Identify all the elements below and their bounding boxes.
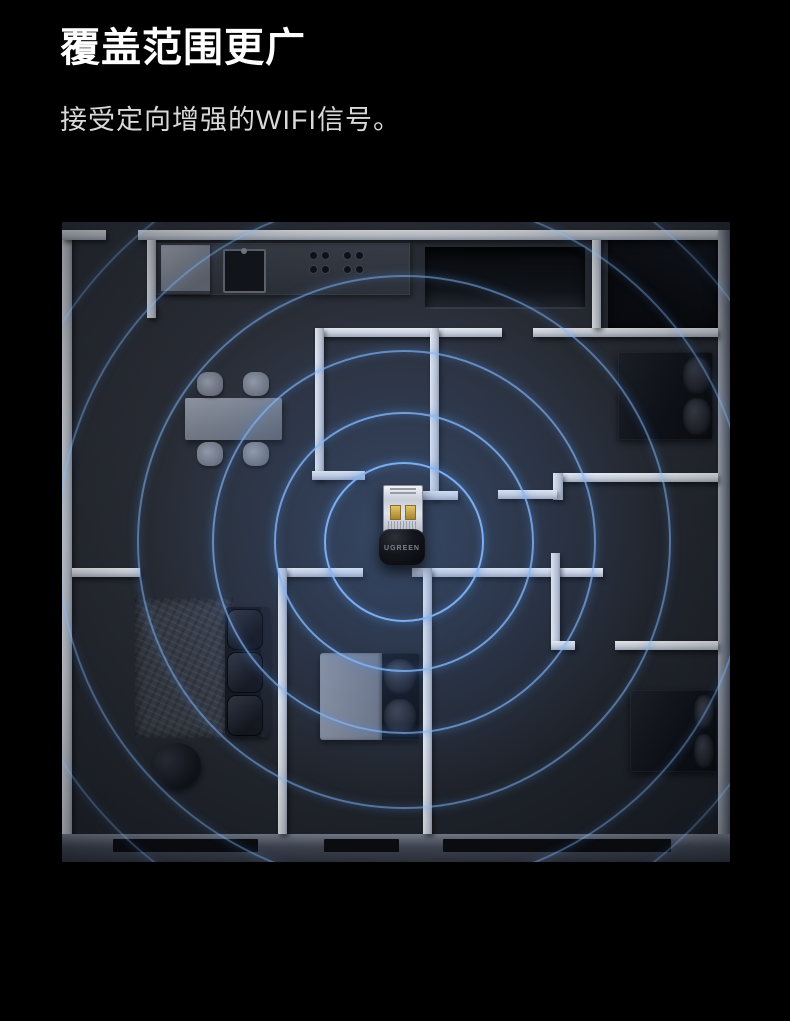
product-feature-section: 覆盖范围更广 接受定向增强的WIFI信号。: [0, 0, 790, 1021]
page-subtitle: 接受定向增强的WIFI信号。: [60, 98, 401, 137]
usb-contact-pad: [405, 505, 416, 520]
page-title: 覆盖范围更广: [60, 26, 401, 70]
usb-print-line: [390, 488, 416, 490]
floorplan-scene: UGREEN: [62, 222, 730, 862]
adapter-body: UGREEN: [379, 529, 425, 565]
usb-print-line: [390, 492, 416, 494]
usb-contact-pad: [390, 505, 401, 520]
usb-connector: [383, 485, 423, 533]
header: 覆盖范围更广 接受定向增强的WIFI信号。: [60, 26, 401, 137]
usb-wifi-adapter: UGREEN: [379, 485, 425, 565]
brand-label: UGREEN: [379, 545, 425, 552]
usb-print-text: [388, 521, 418, 529]
